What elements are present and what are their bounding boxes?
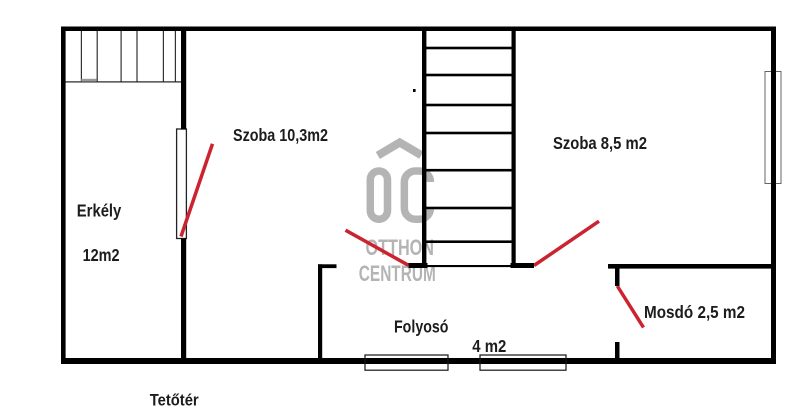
svg-text:Folyosó: Folyosó	[394, 316, 449, 336]
svg-text:Tetőtér: Tetőtér	[150, 392, 200, 410]
svg-text:Mosdó 2,5 m2: Mosdó 2,5 m2	[644, 302, 745, 322]
svg-text:Szoba 10,3m2: Szoba 10,3m2	[233, 125, 328, 145]
svg-text:4 m2: 4 m2	[472, 336, 506, 356]
svg-text:Erkély: Erkély	[77, 201, 122, 221]
svg-text:12m2: 12m2	[83, 245, 120, 265]
svg-text:Szoba 8,5 m2: Szoba 8,5 m2	[553, 133, 647, 153]
